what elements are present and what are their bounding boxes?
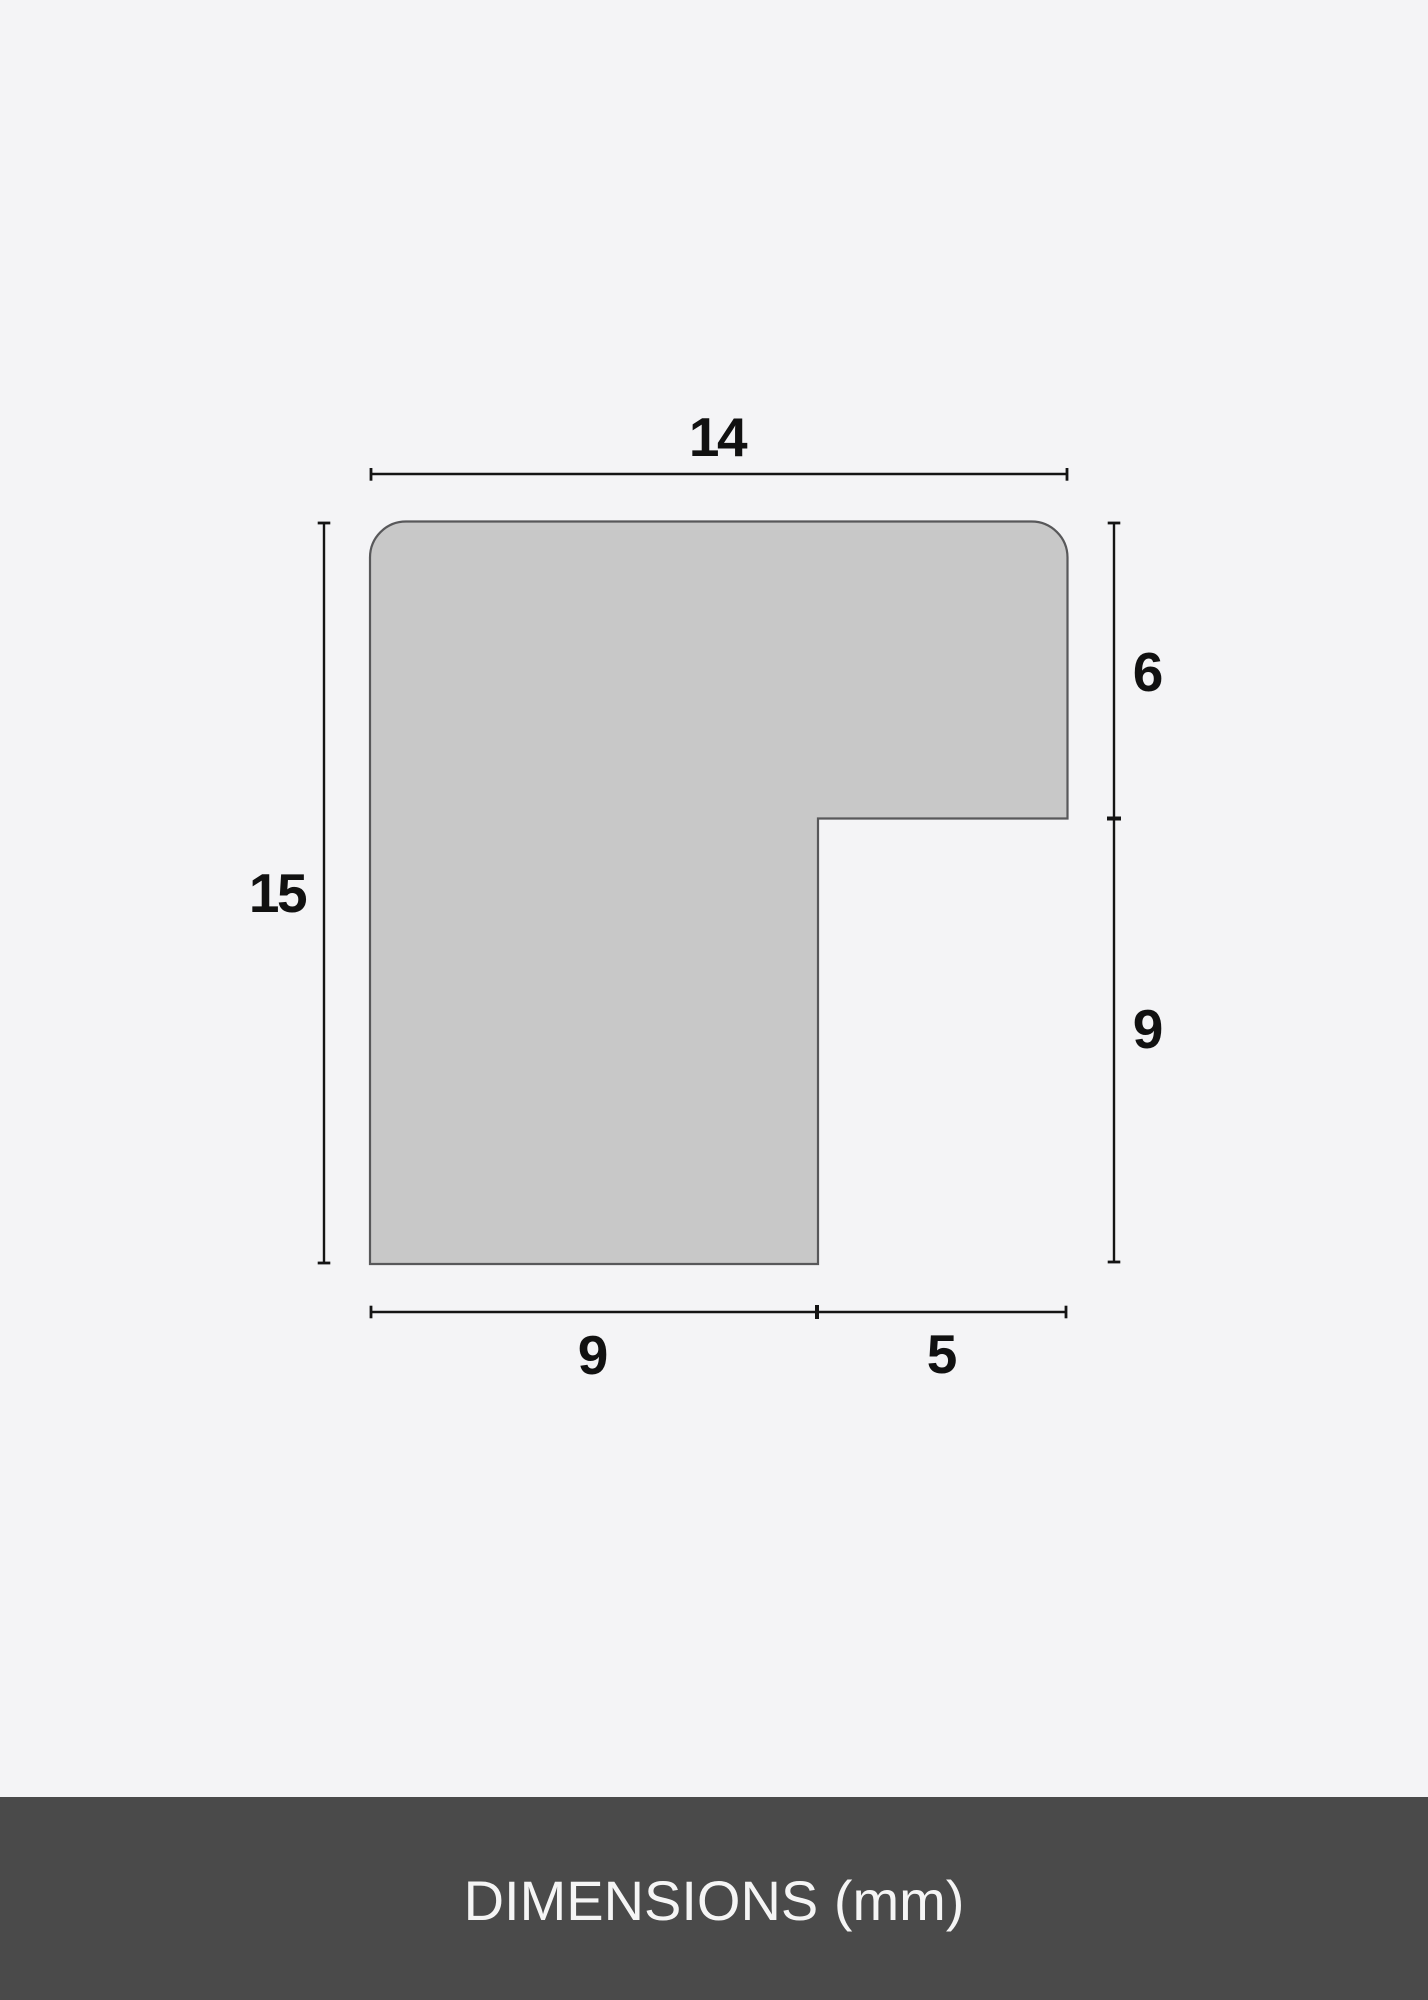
svg-text:6: 6 (1133, 641, 1164, 703)
svg-text:9: 9 (1133, 998, 1164, 1060)
svg-text:DIMENSIONS (mm): DIMENSIONS (mm) (464, 1869, 965, 1932)
svg-text:14: 14 (689, 406, 748, 468)
svg-text:9: 9 (578, 1324, 609, 1386)
svg-text:15: 15 (249, 862, 307, 924)
svg-text:5: 5 (927, 1323, 958, 1385)
